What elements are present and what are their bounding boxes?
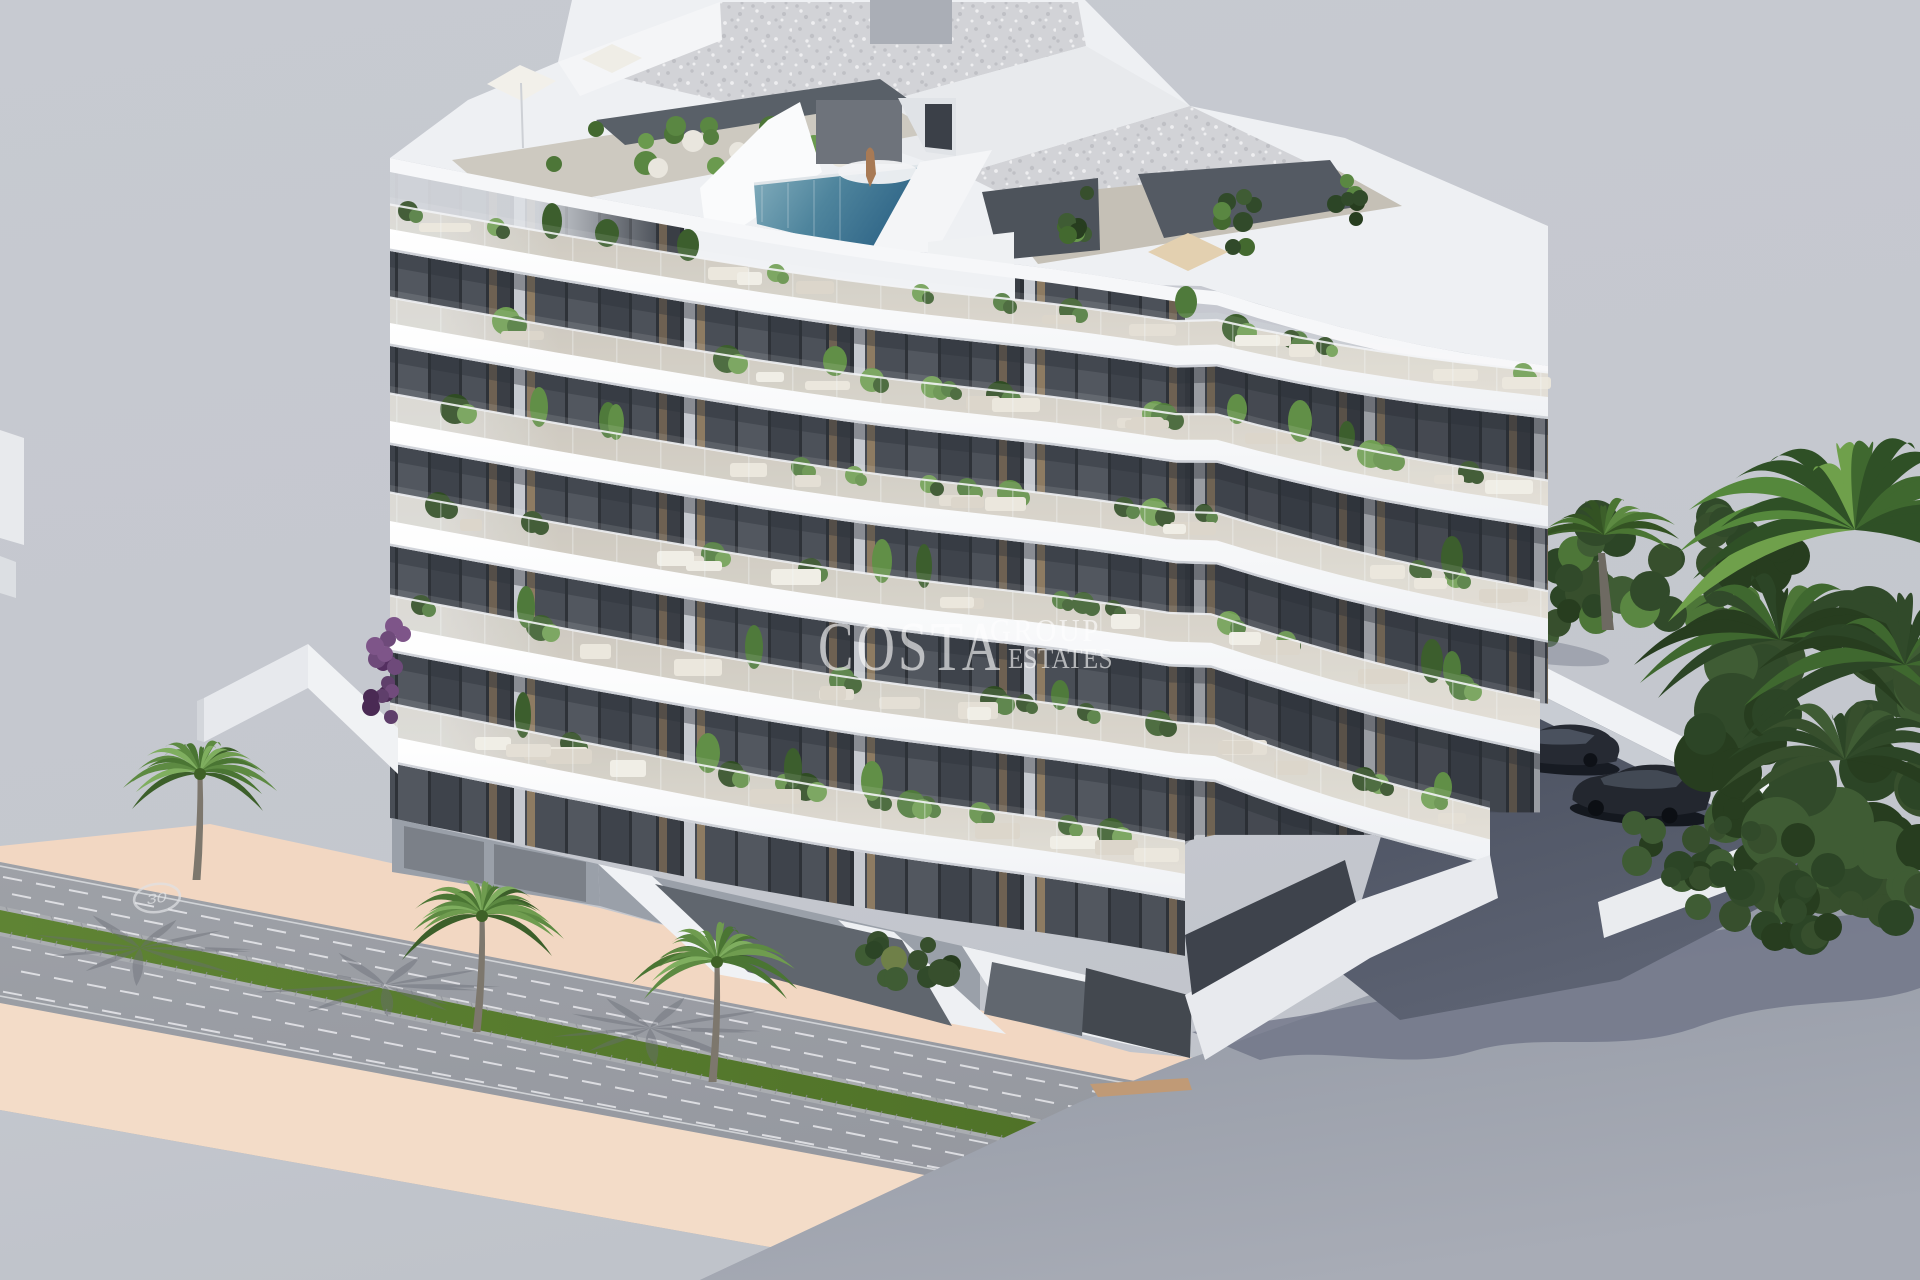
svg-text:COSTA: COSTA [818,609,1003,686]
svg-text:30: 30 [146,889,168,907]
svg-text:ESTATES: ESTATES [1008,642,1113,674]
